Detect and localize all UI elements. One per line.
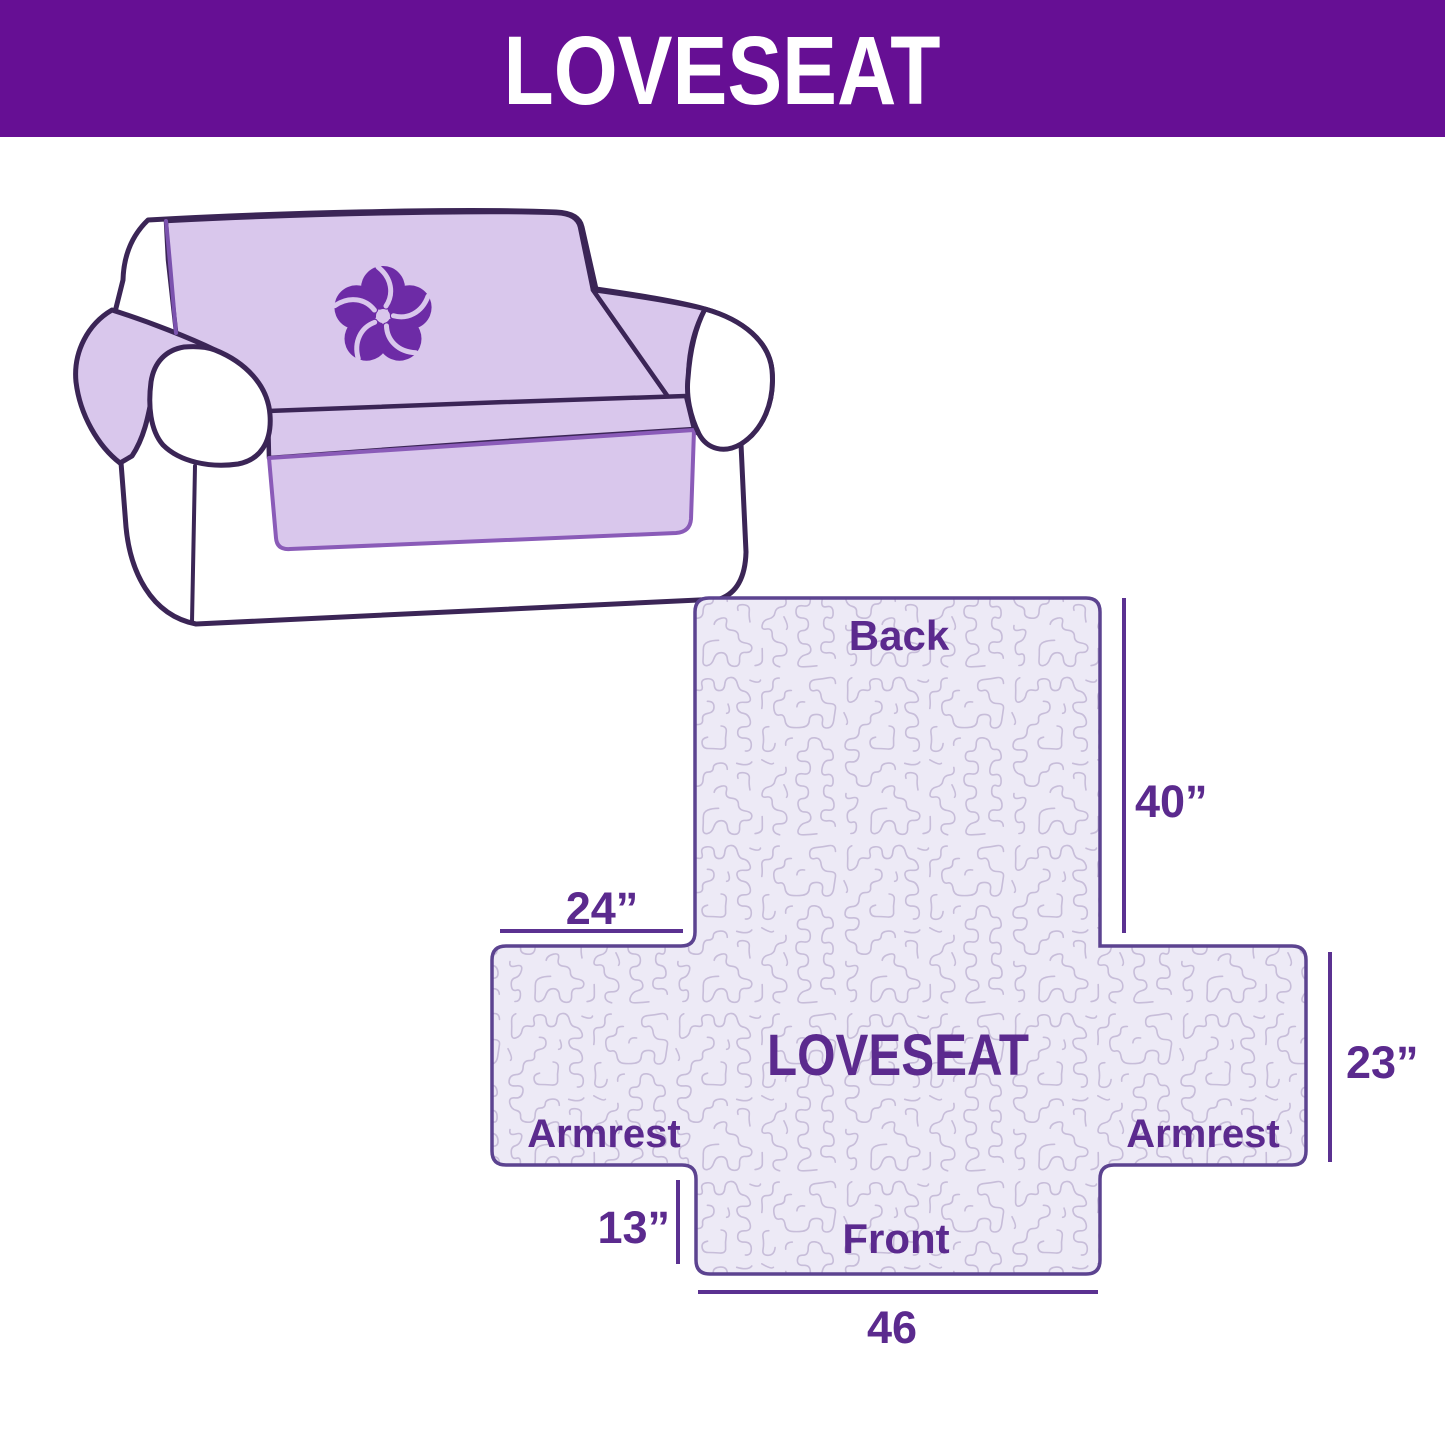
- svg-text:46: 46: [867, 1302, 917, 1353]
- svg-text:40”: 40”: [1135, 776, 1208, 827]
- svg-text:13”: 13”: [597, 1202, 670, 1253]
- svg-text:LOVESEAT: LOVESEAT: [767, 1023, 1029, 1088]
- svg-text:Armrest: Armrest: [1126, 1112, 1279, 1156]
- svg-text:LOVESEAT: LOVESEAT: [504, 16, 941, 125]
- svg-text:Front: Front: [842, 1215, 949, 1262]
- svg-text:Armrest: Armrest: [527, 1112, 680, 1156]
- svg-text:Back: Back: [849, 612, 950, 659]
- svg-text:23”: 23”: [1346, 1037, 1419, 1088]
- svg-text:24”: 24”: [566, 883, 639, 934]
